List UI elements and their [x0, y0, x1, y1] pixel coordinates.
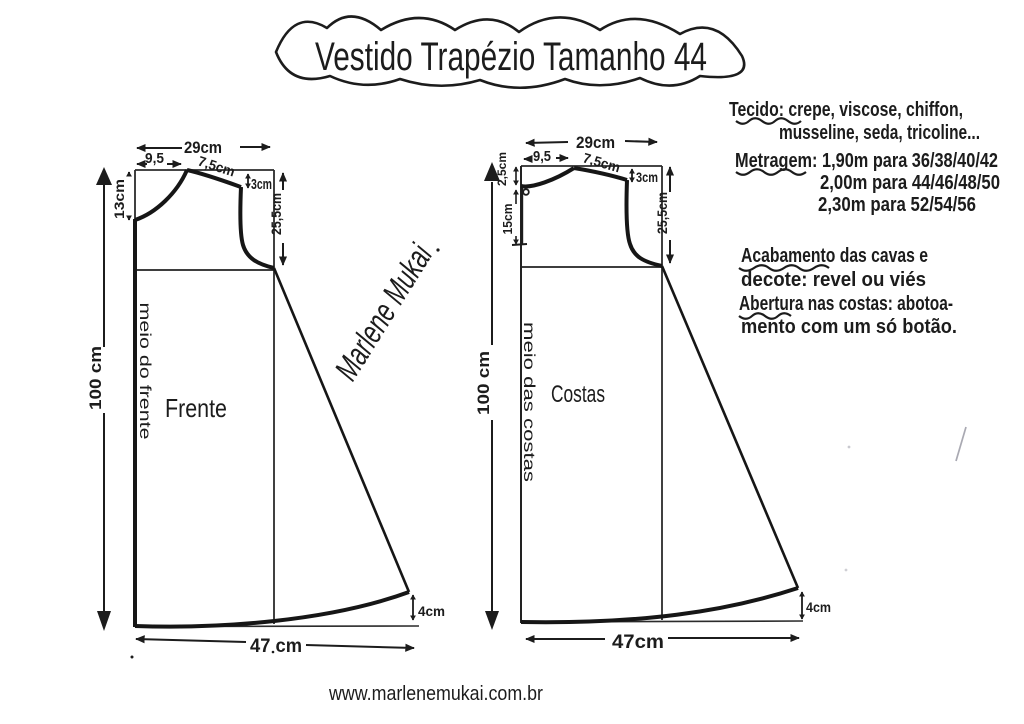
svg-text:4cm: 4cm — [418, 603, 445, 619]
svg-text:Metragem: 1,90m para 36/38/40/: Metragem: 1,90m para 36/38/40/42 — [735, 150, 998, 172]
svg-text:meio das costas: meio das costas — [520, 322, 537, 482]
svg-text:3cm: 3cm — [251, 176, 272, 193]
svg-text:9,5: 9,5 — [533, 148, 551, 165]
svg-text:decote: revel ou viés: decote: revel ou viés — [741, 269, 926, 291]
svg-text:100 cm: 100 cm — [474, 351, 493, 415]
svg-text:Vestido Trapézio Tamanho 44: Vestido Trapézio Tamanho 44 — [315, 35, 707, 79]
svg-text:25,5cm: 25,5cm — [654, 192, 670, 234]
svg-text:Acabamento das cavas e: Acabamento das cavas e — [741, 245, 928, 267]
svg-text:47 cm: 47 cm — [250, 636, 302, 657]
svg-text:15cm: 15cm — [500, 204, 515, 235]
svg-text:Costas: Costas — [551, 381, 605, 408]
svg-text:29cm: 29cm — [576, 133, 615, 152]
svg-text:musseline, seda, tricoline...: musseline, seda, tricoline... — [779, 122, 980, 144]
svg-text:Frente: Frente — [165, 393, 227, 423]
svg-text:13cm: 13cm — [111, 179, 127, 219]
svg-text:4cm: 4cm — [806, 599, 831, 615]
svg-text:9,5: 9,5 — [145, 150, 164, 167]
svg-text:Abertura nas costas: abotoa-: Abertura nas costas: abotoa- — [739, 293, 953, 315]
svg-text:3cm: 3cm — [636, 169, 658, 185]
svg-text:2,00m para 44/46/48/50: 2,00m para 44/46/48/50 — [820, 172, 1000, 194]
svg-text:Marlene Mukai: Marlene Mukai — [327, 237, 440, 387]
svg-text:100 cm: 100 cm — [86, 346, 105, 410]
svg-text:47cm: 47cm — [612, 632, 664, 653]
svg-text:mento com um só botão.: mento com um só botão. — [741, 316, 957, 338]
svg-text:2,30m para 52/54/56: 2,30m para 52/54/56 — [818, 194, 976, 216]
svg-text:meio do frente: meio do frente — [136, 303, 153, 440]
svg-text:25,5cm: 25,5cm — [268, 193, 284, 235]
svg-text:www.marlenemukai.com.br: www.marlenemukai.com.br — [328, 683, 543, 705]
svg-text:Tecido: crepe, viscose, chiffo: Tecido: crepe, viscose, chiffon, — [729, 99, 963, 121]
